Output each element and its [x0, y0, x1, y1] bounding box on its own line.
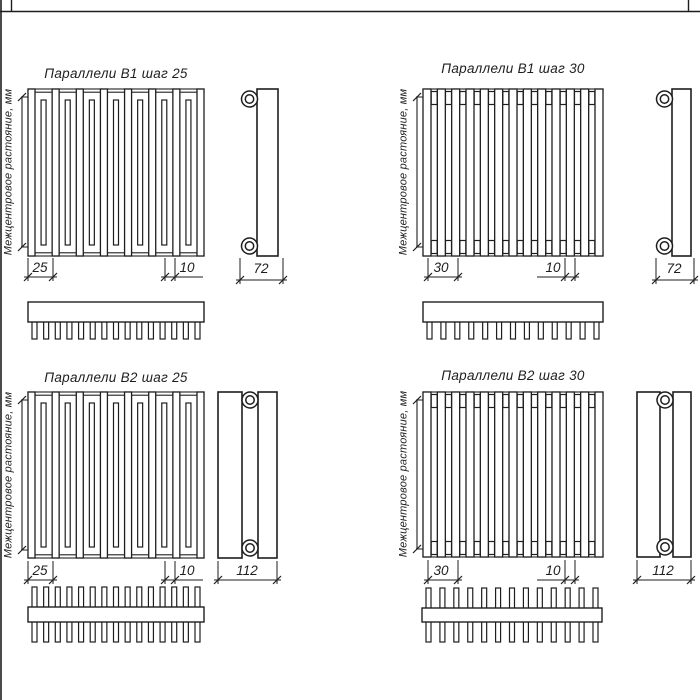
radiator-tube [509, 392, 517, 557]
radiator-tube [466, 392, 474, 557]
radiator-tube [552, 89, 560, 256]
comb-tooth [566, 321, 571, 339]
comb-tooth [172, 321, 177, 339]
comb-tooth [454, 621, 459, 642]
stub-tube-top [460, 395, 466, 408]
comb-tooth [195, 587, 200, 608]
stub-tube-bottom [431, 542, 437, 555]
comb-tooth [511, 321, 516, 339]
radiator-tube [480, 89, 488, 256]
comb-tooth [195, 321, 200, 339]
radiator-tube [581, 89, 589, 256]
stub-tube-top [489, 395, 495, 408]
quadrant-title: Параллели В1 шаг 30 [441, 62, 584, 76]
comb-tooth [593, 621, 598, 642]
comb-tooth [148, 321, 153, 339]
stub-tube-top [575, 395, 581, 408]
comb-tooth [67, 621, 72, 642]
stub-tube-top [560, 92, 566, 105]
stub-tube-bottom [503, 542, 509, 555]
drawing-canvas: Параллели В1 шаг 25 Межцентровое растоян… [0, 0, 700, 700]
pipe-circle-inner [245, 95, 253, 103]
side-plate [673, 392, 691, 557]
comb-tooth [90, 621, 95, 642]
comb-tooth [90, 321, 95, 339]
stub-tube-bottom [446, 542, 452, 555]
depth-dimension-label: 72 [253, 262, 268, 276]
comb-tooth [565, 621, 570, 642]
pipe-circle-inner [246, 396, 254, 404]
comb-tooth [125, 587, 130, 608]
stub-tube-top [532, 92, 538, 105]
comb-tooth [137, 621, 142, 642]
stub-tube-bottom [546, 241, 552, 254]
comb-tooth [593, 588, 598, 609]
stub-tube-top [546, 395, 552, 408]
radiator-tube [100, 89, 107, 256]
pitch-dimension-label: 30 [433, 261, 448, 275]
stub-tube-bottom [546, 542, 552, 555]
stub-tube-bottom [474, 241, 480, 254]
comb-tooth [496, 621, 501, 642]
comb-tooth [482, 588, 487, 609]
stub-tube-top [489, 92, 495, 105]
radiator-tube [466, 89, 474, 256]
back-tube [138, 403, 143, 547]
comb-tooth [594, 321, 599, 339]
comb-tooth [160, 321, 165, 339]
radiator-tube [452, 392, 460, 557]
comb-tooth [67, 587, 72, 608]
stub-tube-bottom [532, 241, 538, 254]
stub-tube-bottom [446, 241, 452, 254]
side-plate [218, 392, 242, 558]
radiator-tube [149, 392, 156, 558]
comb-tooth [441, 321, 446, 339]
depth-dimension-label: 112 [236, 564, 258, 578]
stub-tube-top [560, 395, 566, 408]
comb-tooth [579, 588, 584, 609]
stub-tube-top [431, 395, 437, 408]
comb-tooth [579, 621, 584, 642]
radiator-tube [595, 89, 603, 256]
comb-bar [28, 302, 204, 322]
stub-tube-top [575, 92, 581, 105]
stub-tube-top [589, 92, 595, 105]
pipe-circle-inner [660, 95, 668, 103]
comb-tooth [524, 321, 529, 339]
comb-tooth [468, 621, 473, 642]
radiator-tube [581, 392, 589, 557]
radiator-tube [566, 392, 574, 557]
pipe-circle-inner [661, 396, 669, 404]
comb-tooth [496, 588, 501, 609]
radiator-tube [125, 392, 132, 558]
pipe-circle-inner [245, 242, 253, 250]
comb-tooth [183, 621, 188, 642]
comb-tooth [79, 587, 84, 608]
radiator-tube [566, 89, 574, 256]
comb-tooth [125, 621, 130, 642]
side-plate [672, 89, 691, 256]
comb-tooth [580, 321, 585, 339]
comb-tooth [551, 621, 556, 642]
back-tube [65, 100, 70, 245]
comb-tooth [114, 621, 119, 642]
stub-tube-top [431, 92, 437, 105]
stub-tube-top [532, 395, 538, 408]
stub-tube-bottom [460, 241, 466, 254]
stub-tube-bottom [560, 542, 566, 555]
comb-tooth [102, 621, 107, 642]
radiator-tube [538, 89, 546, 256]
comb-tooth [440, 588, 445, 609]
comb-bar [422, 608, 602, 622]
comb-tooth [483, 321, 488, 339]
back-tube [41, 403, 46, 547]
radiator-tube [173, 392, 180, 558]
comb-tooth [172, 621, 177, 642]
back-tube [162, 100, 167, 245]
comb-tooth [102, 587, 107, 608]
radiator-tube [100, 392, 107, 558]
back-tube [114, 403, 119, 547]
stub-tube-bottom [474, 542, 480, 555]
radiator-tube [480, 392, 488, 557]
comb-tooth [79, 621, 84, 642]
comb-tooth [523, 621, 528, 642]
radiator-tube [538, 392, 546, 557]
comb-tooth [426, 588, 431, 609]
stub-tube-top [517, 395, 523, 408]
comb-tooth [67, 321, 72, 339]
back-tube [65, 403, 70, 547]
stub-tube-bottom [489, 542, 495, 555]
comb-tooth [148, 587, 153, 608]
comb-tooth [32, 621, 37, 642]
radiator-tube [76, 392, 83, 558]
comb-tooth [523, 588, 528, 609]
side-plate [637, 392, 660, 557]
stub-tube-top [589, 395, 595, 408]
comb-bar [28, 607, 204, 622]
radiator-tube [197, 392, 204, 558]
comb-tooth [195, 621, 200, 642]
radiator-tube [76, 89, 83, 256]
radiator-tube [173, 89, 180, 256]
comb-tooth [497, 321, 502, 339]
comb-tooth [32, 321, 37, 339]
comb-tooth [148, 621, 153, 642]
comb-bar [423, 302, 603, 322]
radiator-tube [495, 89, 503, 256]
back-tube [186, 403, 191, 547]
stub-tube-bottom [589, 241, 595, 254]
stub-tube-bottom [517, 542, 523, 555]
depth-dimension-label: 112 [652, 564, 674, 578]
comb-tooth [510, 621, 515, 642]
stub-tube-top [460, 92, 466, 105]
comb-tooth [537, 621, 542, 642]
comb-tooth [551, 588, 556, 609]
radiator-tube [495, 392, 503, 557]
radiator-tube [52, 392, 59, 558]
depth-dimension-label: 72 [666, 262, 681, 276]
back-tube [41, 100, 46, 245]
comb-tooth [125, 321, 130, 339]
pipe-circle-inner [246, 544, 254, 552]
comb-tooth [454, 588, 459, 609]
tube-width-dimension-label: 10 [179, 564, 194, 578]
stub-tube-top [503, 395, 509, 408]
radiator-tube [149, 89, 156, 256]
radiator-tube [552, 392, 560, 557]
comb-tooth [482, 621, 487, 642]
stub-tube-top [517, 92, 523, 105]
pitch-dimension-label: 25 [32, 261, 47, 275]
pipe-circle-inner [661, 543, 669, 551]
back-tube [89, 403, 94, 547]
comb-tooth [510, 588, 515, 609]
axis-label: Межцентровое растояние, мм [399, 89, 410, 255]
comb-tooth [137, 321, 142, 339]
comb-tooth [44, 587, 49, 608]
axis-label: Межцентровое растояние, мм [4, 392, 15, 558]
radiator-tube [523, 89, 531, 256]
comb-tooth [44, 321, 49, 339]
pipe-circle-inner [660, 242, 668, 250]
quadrant-title: Параллели В2 шаг 30 [441, 369, 584, 383]
comb-tooth [55, 621, 60, 642]
back-tube [162, 403, 167, 547]
comb-tooth [426, 621, 431, 642]
stub-tube-top [474, 395, 480, 408]
comb-tooth [114, 321, 119, 339]
radiator-tube [437, 392, 445, 557]
stub-tube-top [546, 92, 552, 105]
comb-tooth [468, 588, 473, 609]
radiator-tube [423, 89, 431, 256]
back-tube [138, 100, 143, 245]
stub-tube-top [503, 92, 509, 105]
quadrant-title: Параллели В1 шаг 25 [44, 67, 187, 81]
comb-tooth [44, 621, 49, 642]
comb-tooth [32, 587, 37, 608]
comb-tooth [90, 587, 95, 608]
radiator-tube [125, 89, 132, 256]
stub-tube-bottom [589, 542, 595, 555]
comb-tooth [537, 588, 542, 609]
comb-tooth [469, 321, 474, 339]
comb-tooth [183, 321, 188, 339]
stub-tube-top [474, 92, 480, 105]
pitch-dimension-label: 30 [433, 564, 448, 578]
tube-width-dimension-label: 10 [545, 261, 560, 275]
comb-tooth [440, 621, 445, 642]
radiator-tube [28, 89, 35, 256]
radiator-tube [509, 89, 517, 256]
quadrant-title: Параллели В2 шаг 25 [44, 371, 187, 385]
back-tube [186, 100, 191, 245]
radiator-tube [437, 89, 445, 256]
comb-tooth [102, 321, 107, 339]
stub-tube-bottom [532, 542, 538, 555]
stub-tube-bottom [575, 542, 581, 555]
comb-tooth [565, 588, 570, 609]
tube-width-dimension-label: 10 [179, 261, 194, 275]
comb-tooth [455, 321, 460, 339]
stub-tube-bottom [431, 241, 437, 254]
radiator-tube [452, 89, 460, 256]
technical-drawing-geometry [0, 0, 700, 700]
comb-tooth [552, 321, 557, 339]
stub-tube-bottom [489, 241, 495, 254]
comb-tooth [160, 587, 165, 608]
comb-tooth [79, 321, 84, 339]
radiator-tube [28, 392, 35, 558]
radiator-tube [423, 392, 431, 557]
side-plate [258, 392, 277, 558]
stub-tube-bottom [460, 542, 466, 555]
radiator-tube [52, 89, 59, 256]
stub-tube-bottom [575, 241, 581, 254]
tube-width-dimension-label: 10 [545, 564, 560, 578]
stub-tube-top [446, 92, 452, 105]
stub-tube-bottom [517, 241, 523, 254]
stub-tube-bottom [560, 241, 566, 254]
back-tube [89, 100, 94, 245]
comb-tooth [137, 587, 142, 608]
pitch-dimension-label: 25 [32, 564, 47, 578]
stub-tube-bottom [503, 241, 509, 254]
comb-tooth [183, 587, 188, 608]
comb-tooth [172, 587, 177, 608]
comb-tooth [160, 621, 165, 642]
comb-tooth [427, 321, 432, 339]
comb-tooth [55, 321, 60, 339]
side-plate [257, 89, 278, 256]
radiator-tube [197, 89, 204, 256]
comb-tooth [55, 587, 60, 608]
axis-label: Межцентровое растояние, мм [399, 391, 410, 557]
stub-tube-top [446, 395, 452, 408]
axis-label: Межцентровое растояние, мм [4, 89, 15, 255]
back-tube [114, 100, 119, 245]
comb-tooth [538, 321, 543, 339]
radiator-tube [523, 392, 531, 557]
radiator-tube [595, 392, 603, 557]
comb-tooth [114, 587, 119, 608]
